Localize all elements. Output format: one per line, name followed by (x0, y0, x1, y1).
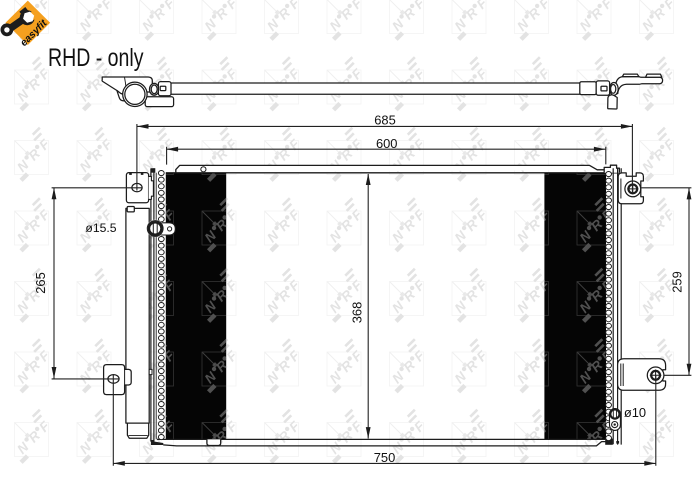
svg-text:265: 265 (33, 272, 48, 294)
svg-text:685: 685 (374, 112, 396, 127)
svg-text:ø10: ø10 (624, 405, 646, 420)
svg-text:368: 368 (350, 302, 365, 324)
svg-text:RHD - only: RHD - only (48, 45, 144, 72)
svg-text:ø15.5: ø15.5 (85, 221, 116, 235)
svg-text:750: 750 (374, 450, 396, 465)
svg-text:600: 600 (376, 136, 398, 151)
svg-text:259: 259 (670, 271, 685, 293)
